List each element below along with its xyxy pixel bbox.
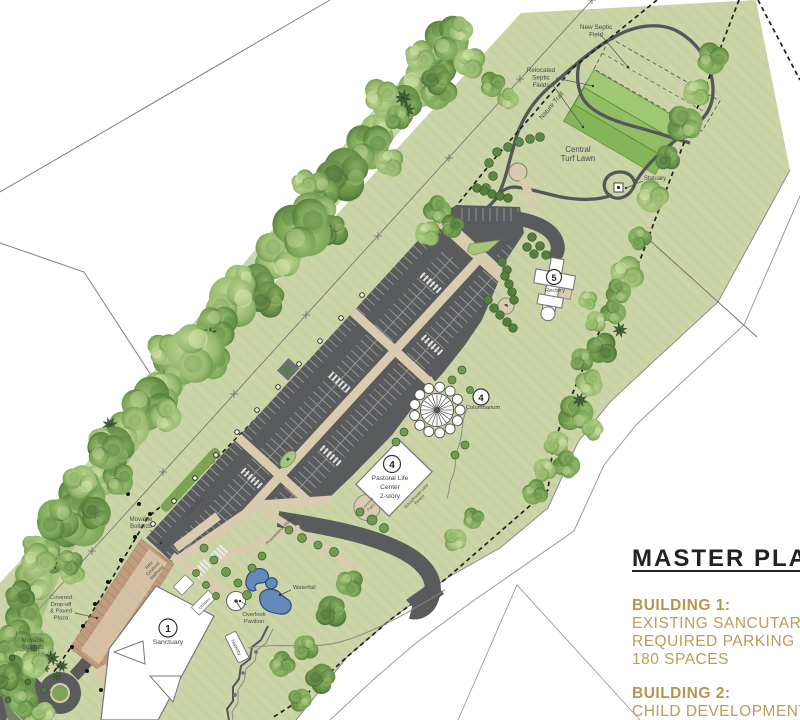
- svg-text:1: 1: [165, 624, 171, 635]
- svg-text:2-story: 2-story: [380, 493, 401, 500]
- svg-text:5: 5: [551, 273, 556, 283]
- svg-text:Bollards: Bollards: [22, 645, 44, 651]
- svg-text:Overlook: Overlook: [242, 612, 265, 618]
- svg-text:MASTER PLAN: MASTER PLAN: [632, 545, 800, 572]
- svg-text:New Septic: New Septic: [580, 24, 613, 31]
- svg-text:Columbarium: Columbarium: [466, 405, 501, 411]
- svg-text:Movable: Movable: [22, 638, 45, 644]
- svg-text:Bollards: Bollards: [130, 524, 152, 530]
- svg-text:Relocated: Relocated: [527, 67, 556, 74]
- svg-text:EXISTING SANCUTARY: EXISTING SANCUTARY: [632, 615, 800, 632]
- svg-text:Pavilion: Pavilion: [244, 619, 264, 625]
- svg-text:Statuary: Statuary: [644, 176, 666, 182]
- svg-text:REQUIRED PARKING: REQUIRED PARKING: [632, 633, 795, 650]
- svg-text:Rectory: Rectory: [545, 288, 565, 294]
- svg-text:Movable: Movable: [130, 517, 153, 523]
- svg-text:Center: Center: [380, 484, 401, 491]
- svg-text:BUILDING 2:: BUILDING 2:: [632, 685, 731, 702]
- svg-text:CHILD DEVELOPMENT: CHILD DEVELOPMENT: [632, 703, 800, 720]
- svg-text:Drop-off: Drop-off: [51, 602, 72, 608]
- svg-text:BUILDING 1:: BUILDING 1:: [632, 597, 731, 614]
- svg-text:Turf Lawn: Turf Lawn: [561, 154, 595, 163]
- svg-text:4: 4: [478, 393, 484, 404]
- svg-text:Septic: Septic: [532, 75, 551, 82]
- svg-text:Pastoral Life: Pastoral Life: [372, 475, 409, 482]
- svg-text:Plaza: Plaza: [54, 616, 69, 622]
- svg-text:Covered: Covered: [50, 595, 72, 601]
- svg-text:180 SPACES: 180 SPACES: [632, 651, 729, 668]
- svg-text:Sanctuary: Sanctuary: [153, 639, 184, 646]
- svg-text:4: 4: [389, 460, 395, 471]
- svg-text:Fields: Fields: [532, 82, 549, 89]
- svg-text:Central: Central: [565, 145, 590, 154]
- svg-text:& Paved: & Paved: [50, 609, 72, 615]
- svg-text:Waterfall: Waterfall: [293, 585, 316, 591]
